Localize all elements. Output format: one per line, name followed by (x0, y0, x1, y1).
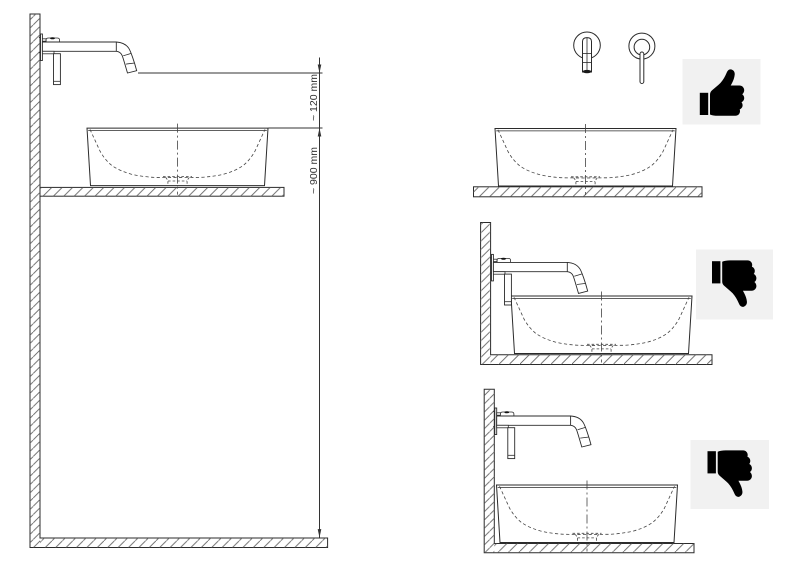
svg-text:~ 120 mm: ~ 120 mm (308, 74, 320, 121)
svg-text:~ 900 mm: ~ 900 mm (308, 147, 320, 194)
